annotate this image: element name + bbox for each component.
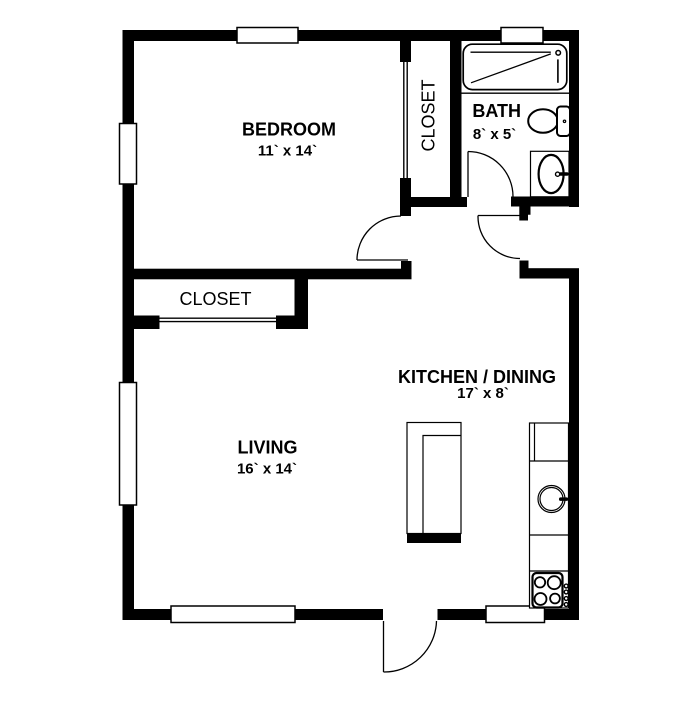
svg-text:LIVING: LIVING (237, 438, 297, 458)
svg-text:11` x 14`: 11` x 14` (258, 143, 317, 160)
svg-text:KITCHEN / DINING: KITCHEN / DINING (398, 367, 556, 387)
svg-text:17` x 8`: 17` x 8` (457, 385, 509, 402)
svg-text:8` x 5`: 8` x 5` (473, 126, 516, 143)
svg-text:BEDROOM: BEDROOM (242, 120, 336, 140)
svg-text:CLOSET: CLOSET (419, 79, 439, 151)
svg-text:CLOSET: CLOSET (179, 289, 251, 309)
svg-text:BATH: BATH (472, 101, 521, 121)
svg-text:16` x 14`: 16` x 14` (237, 461, 297, 478)
